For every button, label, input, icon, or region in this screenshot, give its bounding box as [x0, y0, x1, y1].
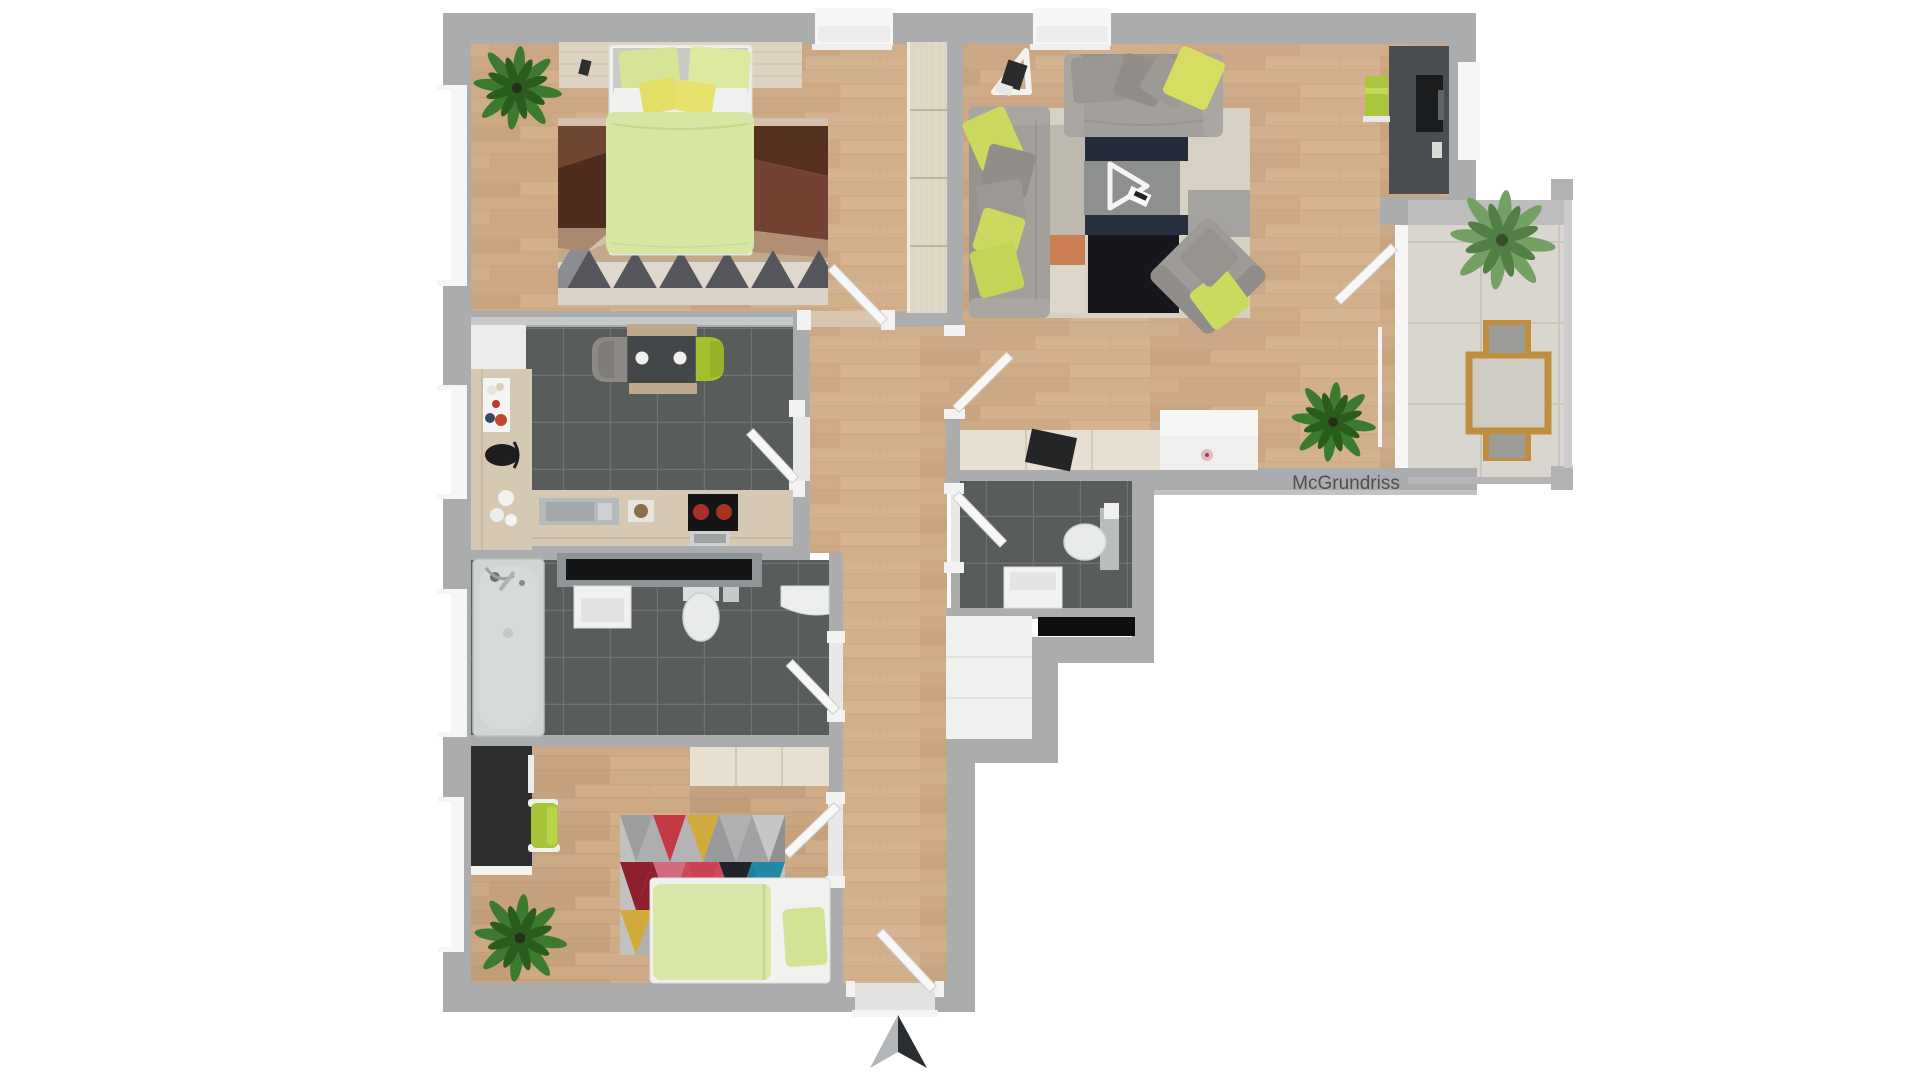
svg-text:McGrundriss: McGrundriss: [1292, 473, 1400, 494]
